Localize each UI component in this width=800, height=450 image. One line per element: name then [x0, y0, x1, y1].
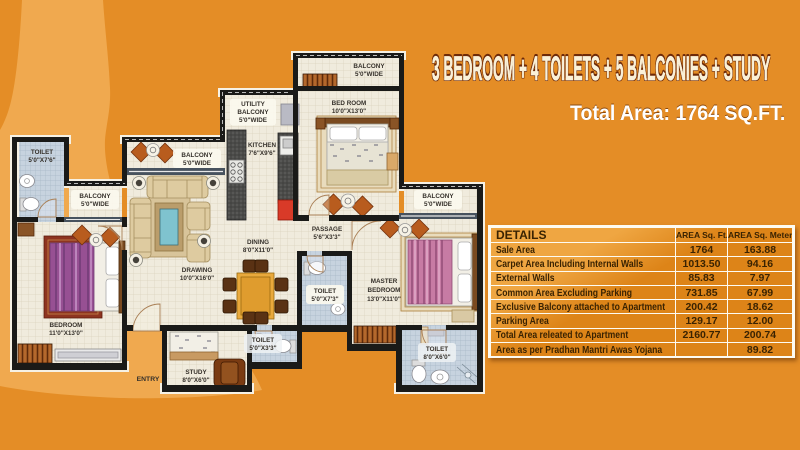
- svg-text:UTILITY: UTILITY: [241, 101, 266, 108]
- svg-text:5'0"X3'3": 5'0"X3'3": [249, 345, 276, 352]
- svg-text:5'0"X7'3": 5'0"X7'3": [311, 296, 338, 303]
- svg-text:TOILET: TOILET: [252, 337, 274, 344]
- svg-text:MASTER: MASTER: [371, 278, 398, 285]
- svg-text:BEDROOM: BEDROOM: [368, 287, 401, 294]
- svg-text:TOILET: TOILET: [314, 288, 336, 295]
- svg-text:BEDROOM: BEDROOM: [50, 322, 83, 329]
- svg-text:DRAWING: DRAWING: [182, 267, 213, 274]
- svg-text:8'0"X6'0": 8'0"X6'0": [423, 354, 450, 361]
- svg-text:5'0"X7'6": 5'0"X7'6": [28, 157, 55, 164]
- svg-text:11'0"X13'0": 11'0"X13'0": [49, 330, 83, 337]
- svg-text:BED ROOM: BED ROOM: [332, 100, 367, 107]
- svg-text:8'0"X6'0": 8'0"X6'0": [182, 377, 209, 384]
- svg-text:BALCONY: BALCONY: [422, 193, 454, 200]
- svg-text:BALCONY: BALCONY: [181, 152, 213, 159]
- svg-text:5'0"WIDE: 5'0"WIDE: [239, 117, 267, 124]
- svg-text:TOILET: TOILET: [426, 346, 448, 353]
- svg-text:7'6"X9'6": 7'6"X9'6": [248, 150, 275, 157]
- svg-text:BALCONY: BALCONY: [237, 109, 269, 116]
- svg-text:BALCONY: BALCONY: [79, 193, 111, 200]
- svg-text:BALCONY: BALCONY: [353, 63, 385, 70]
- svg-text:5'0"WIDE: 5'0"WIDE: [183, 160, 211, 167]
- svg-text:8'0"X11'0": 8'0"X11'0": [243, 247, 273, 254]
- svg-text:10'0"X13'0": 10'0"X13'0": [332, 108, 366, 115]
- svg-text:PASSAGE: PASSAGE: [312, 226, 342, 233]
- svg-text:5'0"WIDE: 5'0"WIDE: [81, 201, 109, 208]
- svg-text:ENTRY: ENTRY: [137, 376, 160, 383]
- svg-text:5'6"X3'3": 5'6"X3'3": [313, 234, 340, 241]
- svg-text:13'0"X11'0": 13'0"X11'0": [367, 296, 401, 303]
- svg-text:DINING: DINING: [247, 239, 269, 246]
- svg-text:5'0"WIDE: 5'0"WIDE: [355, 71, 383, 78]
- svg-text:KITCHEN: KITCHEN: [248, 142, 276, 149]
- svg-text:STUDY: STUDY: [185, 369, 207, 376]
- svg-text:10'0"X16'0": 10'0"X16'0": [180, 275, 214, 282]
- svg-text:TOILET: TOILET: [31, 149, 53, 156]
- svg-text:5'0"WIDE: 5'0"WIDE: [424, 201, 452, 208]
